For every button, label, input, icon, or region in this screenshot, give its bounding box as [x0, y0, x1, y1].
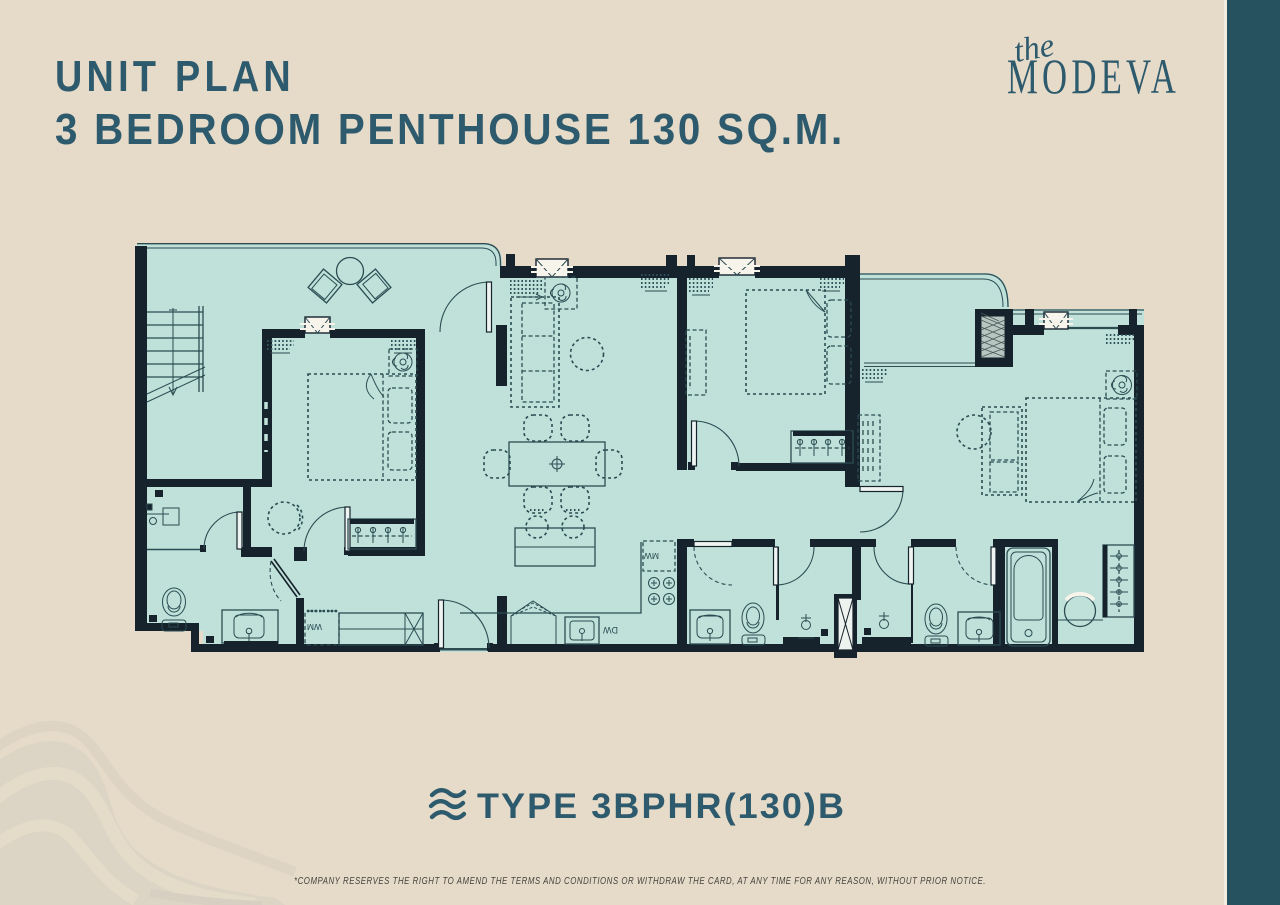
svg-text:DW: DW — [603, 625, 618, 635]
svg-text:MW: MW — [644, 551, 659, 561]
svg-text:3 BEDROOM PENTHOUSE 130 SQ.M.: 3 BEDROOM PENTHOUSE 130 SQ.M. — [55, 105, 845, 154]
svg-text:UNIT PLAN: UNIT PLAN — [55, 52, 295, 101]
svg-text:WM: WM — [307, 622, 322, 632]
svg-text:MODEVA: MODEVA — [1007, 48, 1180, 104]
svg-text:*COMPANY RESERVES THE RIGHT TO: *COMPANY RESERVES THE RIGHT TO AMEND THE… — [294, 876, 986, 887]
svg-text:TYPE 3BPHR(130)B: TYPE 3BPHR(130)B — [477, 787, 846, 826]
